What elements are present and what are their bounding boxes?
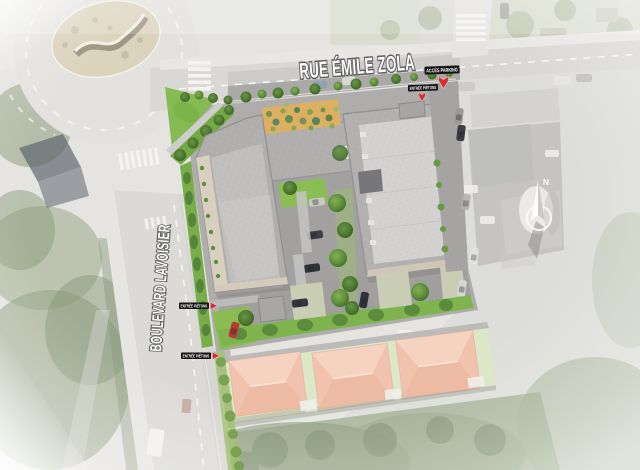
svg-text:ENTRÉE PIÉTONS: ENTRÉE PIÉTONS bbox=[181, 303, 208, 309]
svg-text:ENTRÉE PIÉTONS: ENTRÉE PIÉTONS bbox=[183, 353, 210, 359]
svg-text:ENTRÉE PIÉTONS: ENTRÉE PIÉTONS bbox=[410, 84, 437, 91]
svg-text:N: N bbox=[543, 177, 549, 187]
